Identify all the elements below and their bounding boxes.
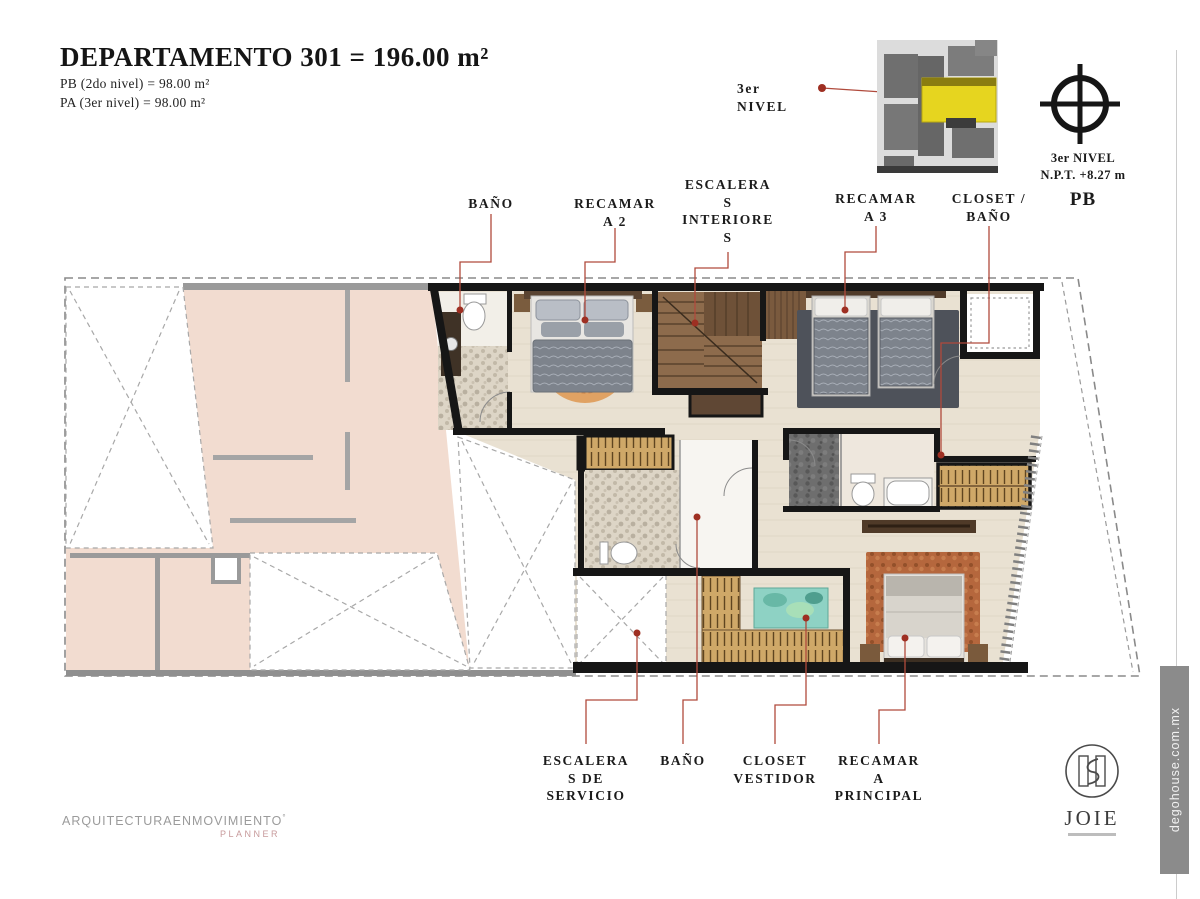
brand-sub: PLANNER — [62, 829, 280, 839]
brand-mark: ° — [282, 813, 286, 822]
watermark-bar: degohouse.com.mx — [1160, 666, 1189, 874]
joie-monogram-icon — [1063, 742, 1121, 800]
compass-caption: 3er NIVEL N.P.T. +8.27 m — [1041, 150, 1126, 184]
level-callout: 3er NIVEL — [737, 80, 788, 115]
room-recamara-principal — [860, 552, 988, 666]
room-escaleras-servicio — [577, 574, 666, 666]
label-escaleras-servicio: ESCALERA S DE SERVICIO — [543, 752, 629, 805]
label-closet-vestidor: CLOSET VESTIDOR — [733, 752, 816, 787]
plan-header: DEPARTAMENTO 301 = 196.00 m² PB (2do niv… — [60, 42, 489, 111]
compass-level: PB — [1070, 188, 1096, 213]
joie-tagline — [1068, 833, 1116, 836]
room-recamara-2 — [514, 289, 652, 403]
label-recamara-2: RECAMAR A 2 — [574, 195, 656, 230]
joie-name: JOIE — [1050, 806, 1134, 831]
void-bottom-left — [250, 553, 470, 670]
room-closet-vestidor — [702, 576, 848, 668]
tv-console — [862, 520, 976, 533]
watermark-text: degohouse.com.mx — [1168, 707, 1182, 832]
compass-icon — [1040, 64, 1120, 144]
floorplan-page: DEPARTAMENTO 301 = 196.00 m² PB (2do niv… — [0, 0, 1200, 899]
brand-name: ARQUITECTURAENMOVIMIENTO° — [62, 813, 312, 828]
area-pa: PA (3er nivel) = 98.00 m² — [60, 95, 489, 111]
room-bano-3 — [789, 434, 934, 508]
room-bano-principal — [585, 436, 752, 570]
architect-brand: ARQUITECTURAENMOVIMIENTO° PLANNER — [62, 813, 312, 839]
joie-logo: JOIE — [1050, 742, 1134, 836]
closet-recamara-3 — [938, 464, 1030, 508]
label-closet-bano: CLOSET / BAÑO — [952, 190, 1026, 225]
label-bano-2: BAÑO — [468, 195, 513, 213]
label-escaleras-interiores: ESCALERA S INTERIORE S — [682, 176, 774, 246]
area-pb: PB (2do nivel) = 98.00 m² — [60, 76, 489, 92]
label-recamara-3: RECAMAR A 3 — [835, 190, 917, 225]
page-title: DEPARTAMENTO 301 = 196.00 m² — [60, 42, 489, 73]
label-bano-principal: BAÑO — [660, 752, 705, 770]
label-recamara-principal: RECAMAR A PRINCIPAL — [835, 752, 923, 805]
building-3d-key — [877, 40, 998, 173]
